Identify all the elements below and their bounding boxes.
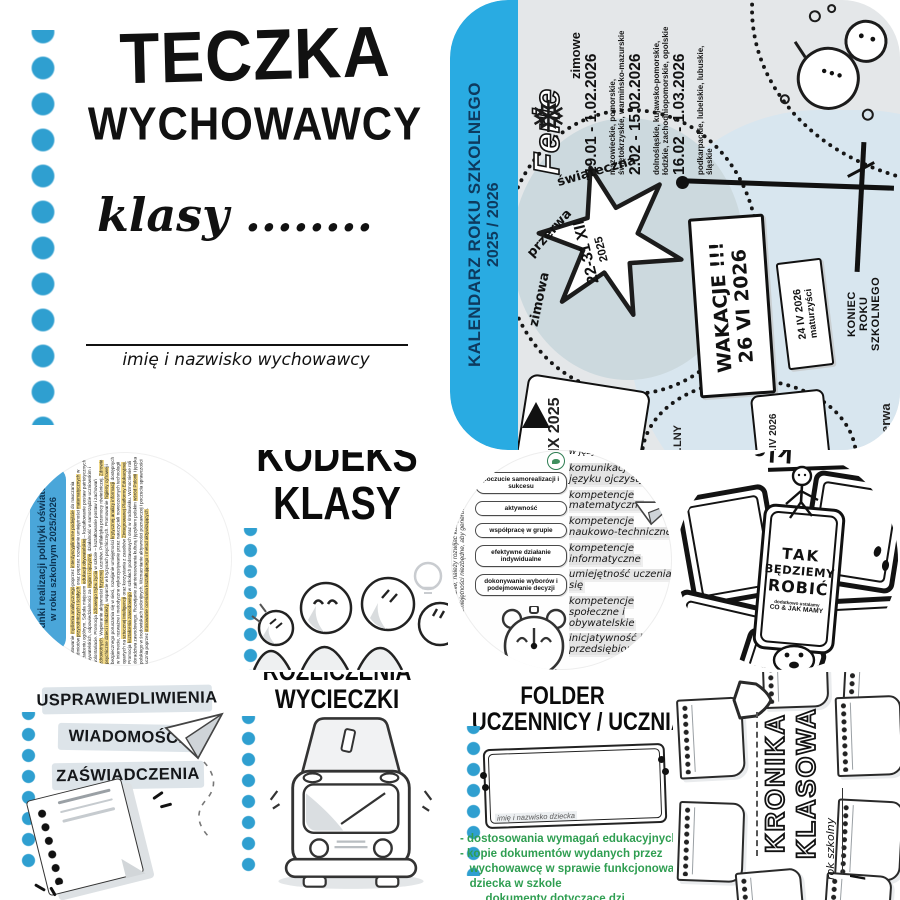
paper-plane-with-trail (164, 712, 225, 842)
kronika-year-slash: / (848, 768, 871, 880)
fragment-spring: …IV 2026 (768, 398, 779, 450)
ribbon-label: efektywne działanie indywidualne (475, 545, 567, 567)
folder-title-line2: UCZENNICY / UCZNIA (472, 708, 653, 737)
spark-decoration (34, 883, 46, 892)
folder-note-line: dokumenty dotyczące dzi (460, 892, 673, 900)
kronika-year-label: rok szkolny (824, 768, 837, 880)
cover-title-line1: TECZKA (86, 9, 424, 102)
competency-item: kompetencje społeczne i obywatelskie (569, 597, 672, 629)
tak-line3: ROBIĆ (767, 575, 829, 599)
signature-line (86, 344, 408, 346)
connector-dot (480, 772, 487, 779)
small-face-illustration (772, 642, 816, 670)
ferie-term-3-regions: podkarpackie, lubelskie, lubuskie, śląsk… (696, 25, 714, 175)
ferie-title: Ferie (526, 0, 568, 175)
tile-documents: USPRAWIEDLIWIENIA WIADOMOŚCI ZAŚWIADCZEN… (0, 676, 225, 900)
ribbon-label: współpracę w grupie (475, 523, 567, 538)
notepad-illustration (26, 778, 145, 897)
folder-note-line: - kopie dokumentów wydanych przez (460, 847, 673, 862)
cover-title-line2: WYCHOWAWCY (80, 98, 430, 151)
folder-note-line: wychowawcę w sprawie funkcjonowa (460, 862, 673, 877)
dashed-rule (756, 712, 758, 856)
competencies-ribbons: poczucie samorealizacji i sukcesuaktywno… (475, 472, 567, 603)
fragment-erwa: …erwa (878, 386, 893, 446)
connector-dot (662, 768, 669, 775)
blue-dots-decoration (28, 30, 58, 425)
kronika-title-line2: KLASOWA (791, 698, 822, 868)
ribbon-label: poczucie samorealizacji i sukcesu (475, 472, 567, 494)
winter-holidays-block: Ferie zimowe 19.01 - 1.02.2026 mazowieck… (526, 0, 715, 175)
spark-decoration (152, 791, 164, 800)
end-of-year-line1: KONIEC (846, 266, 858, 362)
side-note-1: …cześnie, należy rozwijać kompet… (452, 466, 459, 652)
folded-corner (121, 854, 145, 878)
label-usprawiedliwienia: USPRAWIEDLIWIENIA (42, 685, 212, 715)
ferie-term-3-date: 16.02 - 1.03.2026 (671, 0, 689, 175)
calendar-rounded-card: Ferie zimowe 19.01 - 1.02.2026 mazowieck… (450, 0, 900, 450)
connector-dot (658, 756, 665, 763)
tile-competencies: …cześnie, należy rozwijać kompet… umieję… (451, 450, 672, 670)
year-blank-line (842, 788, 843, 874)
folder-notes: - dostosowania wymagań edukacyjnych- kop… (460, 832, 673, 900)
notebook-sketch (677, 801, 746, 883)
cut-blob-2 (750, 388, 832, 450)
kronika-title: KRONIKA KLASOWA (760, 698, 822, 868)
name-frame-label: imię i nazwisko dziecka (495, 811, 577, 823)
calendar-title-line1: KALENDARZ ROKU SZKOLNEGO (465, 15, 485, 435)
ferie-term-2-date: 2.02 - 15.02.2026 (627, 0, 645, 175)
stick-figure-illustration (768, 464, 832, 522)
tile-calendar: Ferie zimowe 19.01 - 1.02.2026 mazowieck… (450, 0, 900, 450)
tile-trip: ROZLICZENIA WYCIECZKI (226, 672, 448, 900)
competencies-side-note: …cześnie, należy rozwijać kompet… umieję… (452, 466, 466, 652)
tile-kodeks: KODEKS KLASY (226, 450, 448, 670)
notebook-sketch (835, 695, 900, 777)
vacation-sign: WAKACJE !!! 26 VI 2026 (688, 214, 776, 399)
competency-item: komunikacja w języku ojczystym (569, 464, 672, 486)
competencies-top-fragment: w języ… (569, 450, 607, 457)
blue-dots-decoration (20, 712, 37, 872)
tile-cover: TECZKA WYCHOWAWCY klasy ........ imię i … (0, 0, 450, 450)
kronika-title-line1: KRONIKA (760, 698, 791, 868)
tak-tablet: TAK BĘDZIEMY ROBIĆ dodatkowo ustalamy CO… (752, 503, 846, 656)
tile-policy-flyer: Kierunki realizacji polityki oświatowej … (18, 452, 232, 666)
folder-note-line: dziecka w szkole (460, 877, 673, 892)
stamp-icon (547, 452, 565, 470)
calendar-title-band: KALENDARZ ROKU SZKOLNEGO 2025 / 2026 (450, 0, 518, 450)
ribbon-label: dokonywanie wyborów i podejmowanie decyz… (475, 574, 567, 596)
competency-item: inicjatywność i przedsiębiorczość (569, 634, 672, 656)
folder-note-line: - dostosowania wymagań edukacyjnych (460, 832, 673, 847)
name-frame: imię i nazwisko dziecka (483, 743, 668, 829)
ferie-term-1-regions: mazowieckie, pomorskie, świętokrzyskie, … (608, 25, 626, 175)
policy-text: Kształtowanie myślenia analitycznego pop… (70, 456, 230, 664)
end-of-year-label: KONIEC ROKU SZKOLNEGO (846, 266, 882, 362)
end-of-year-line3: SZKOLNEGO (870, 266, 882, 362)
signature-label: imię i nazwisko wychowawcy (96, 350, 396, 370)
side-note-2: umiejętności niezbędne, aby genero… (459, 466, 466, 652)
fragment-lny: …LNY (672, 408, 684, 450)
competency-item: kompetencje informatyczne (569, 544, 672, 566)
competencies-list: komunikacja w języku ojczystymkompetencj… (569, 464, 672, 661)
snowflake-icon: ❅ (530, 96, 567, 140)
alarm-clock-illustration (495, 606, 573, 670)
policy-title-line2: w roku szkolnym 2025/2026 (48, 469, 59, 649)
policy-title-band: Kierunki realizacji polityki oświatowej … (30, 466, 66, 652)
bus-illustration (268, 714, 434, 890)
ferie-subtitle: zimowe (568, 0, 583, 175)
end-of-year-line2: ROKU (858, 266, 870, 362)
policy-title-line1: Kierunki realizacji polityki oświatowej (37, 469, 48, 649)
tree-silhouette (522, 402, 550, 428)
notebook-sketch (735, 867, 808, 900)
cover-class-line: klasy ........ (70, 188, 400, 242)
signpost-knob (676, 176, 689, 189)
calendar-title-line2: 2025 / 2026 (485, 15, 503, 435)
tile-folder: FOLDER UCZENNICY / UCZNIA imię i nazwisk… (452, 676, 673, 900)
collage: TECZKA WYCHOWAWCY klasy ........ imię i … (0, 0, 900, 900)
tile-tak: klasa TAK BĘDZIEMY ROBIĆ dodatkowo ustal… (676, 450, 898, 670)
connector-dot (482, 784, 489, 791)
ferie-term-1-date: 19.01 - 1.02.2026 (583, 0, 601, 175)
kodeks-title-line2: KLASY (246, 476, 428, 530)
ribbon-label: aktywność (475, 501, 567, 516)
class-figures-illustration (250, 546, 448, 670)
tile-kronika: KRONIKA KLASOWA rok szkolny / (676, 672, 900, 900)
folder-title-line1: FOLDER (472, 682, 653, 711)
blue-dots-decoration (240, 716, 257, 876)
kronika-year: rok szkolny / (824, 768, 871, 880)
trip-title-line2: WYCIECZKI (246, 684, 428, 715)
competency-item: umiejętność uczenia się (569, 570, 672, 592)
